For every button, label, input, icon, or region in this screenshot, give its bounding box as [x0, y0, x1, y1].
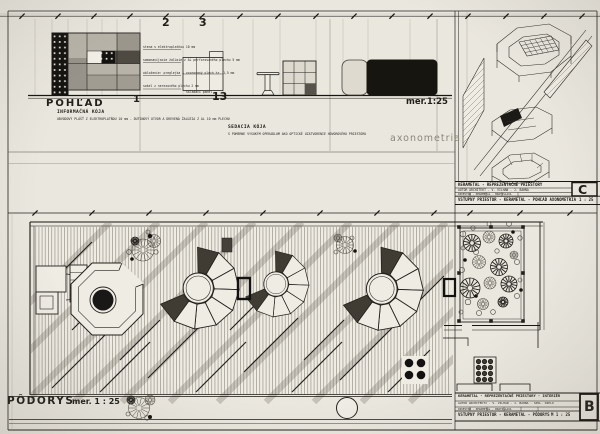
tbb-author: AUTOR ARCHITEKTI - V. VILHAN - J. BAHNA …	[458, 402, 554, 405]
plan-scale: mer. 1 : 25	[72, 398, 120, 406]
elevation-title: POHĽAD	[46, 99, 105, 109]
tbb-sheet-letter: B	[584, 400, 595, 414]
tbc-row3: INVESTOR - KERAMETAL - BRATISLAVA	[458, 193, 511, 196]
tbc-scale: 1 : 25	[579, 198, 593, 202]
position-mark-3: 3	[199, 17, 207, 28]
position-mark-1: 1	[133, 95, 140, 105]
info-booth-note: OBVODOVÝ PLÁŠŤ Z ELEKTROPLATŇOU 10 mm - …	[57, 118, 230, 121]
callout-blinds: samonavíjacie žalúzie z AL perforovaného…	[143, 59, 240, 62]
callout-wall: stena s elektroplatňou 10 mm	[143, 46, 195, 49]
tbb-content: VSTUPNÝ PRIESTOR - KERAMETAL - PÔDORYS	[458, 413, 550, 417]
position-mark-13: 13	[212, 91, 227, 102]
drawing-linework	[0, 0, 600, 434]
detail-caption: skladací panel	[186, 91, 212, 94]
tbc-sheet-letter: C	[578, 184, 587, 197]
tbb-scale: M 1 : 25	[551, 413, 570, 417]
axonometric-drawing	[463, 24, 592, 184]
callout-cladding: obloženie: preglejka + vzorovaný plech h…	[143, 72, 234, 75]
tbc-content: VSTUPNÝ PRIESTOR - KERAMETAL - POHĽAD AX…	[458, 198, 576, 202]
info-booth-name: INFORMAČNÁ KÓJA	[57, 111, 105, 116]
tbc-project: KERAMETAL - REPREZENTAČNÉ PRIESTORY	[458, 183, 542, 187]
tbb-project: KERAMETAL - REPREZENTAČNÉ PRIESTORY - IN…	[458, 395, 560, 399]
callout-plinth: sokel z nerezového plechu 2 mm	[143, 85, 199, 88]
tbb-row3: INVESTOR - KERAMETAL - BRATISLAVA	[458, 408, 511, 411]
seating-booth-name: SEDACIA KÓJA	[228, 126, 266, 131]
elevation-scale: mer.1:25	[406, 98, 448, 107]
seating-booth-note: S POMERNE VYSOKÝM OPERADLOM AKO OPTICKÉ …	[228, 133, 366, 136]
axonometria-label: axonometria	[390, 134, 461, 144]
drawing-sheet: POHĽAD mer.1:25 axonometria 2 3 1 13 INF…	[0, 0, 600, 434]
position-mark-2: 2	[162, 17, 170, 28]
plan-title: PÔDORYS	[7, 396, 74, 407]
